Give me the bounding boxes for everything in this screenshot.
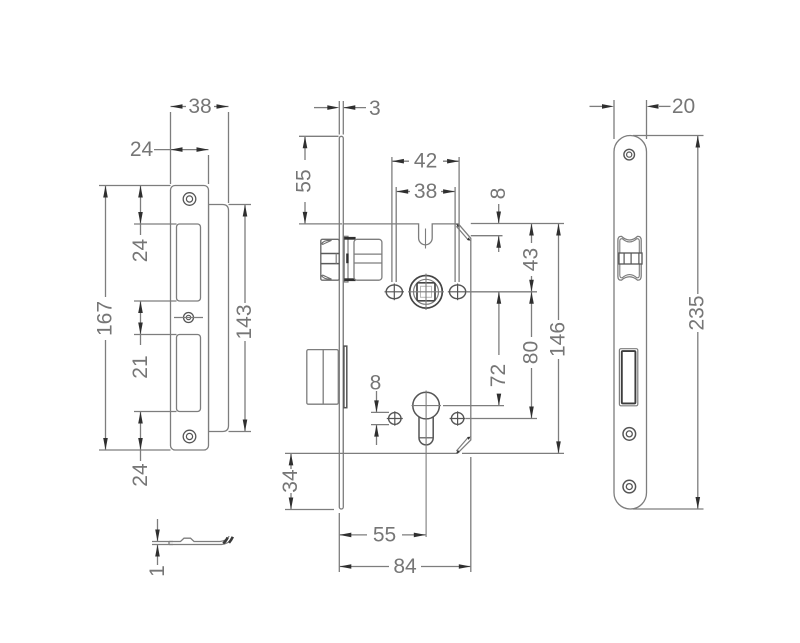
svg-text:1: 1 <box>146 565 169 577</box>
svg-text:38: 38 <box>188 95 211 118</box>
svg-text:34: 34 <box>279 469 302 493</box>
svg-text:20: 20 <box>672 95 695 118</box>
svg-text:24: 24 <box>130 138 154 161</box>
svg-text:24: 24 <box>129 463 152 487</box>
svg-text:55: 55 <box>293 169 316 192</box>
svg-text:146: 146 <box>547 322 570 357</box>
svg-text:72: 72 <box>487 364 510 387</box>
svg-text:8: 8 <box>487 188 510 200</box>
svg-text:55: 55 <box>373 523 396 546</box>
svg-text:21: 21 <box>129 355 152 378</box>
svg-text:24: 24 <box>129 239 152 263</box>
svg-text:167: 167 <box>94 301 117 336</box>
svg-text:235: 235 <box>686 295 709 330</box>
svg-text:38: 38 <box>414 180 437 203</box>
svg-text:3: 3 <box>369 97 381 120</box>
svg-text:84: 84 <box>393 555 417 578</box>
svg-text:8: 8 <box>370 372 382 395</box>
svg-text:42: 42 <box>414 150 437 173</box>
svg-text:43: 43 <box>520 248 543 271</box>
svg-text:143: 143 <box>233 304 256 339</box>
svg-text:80: 80 <box>520 341 543 364</box>
